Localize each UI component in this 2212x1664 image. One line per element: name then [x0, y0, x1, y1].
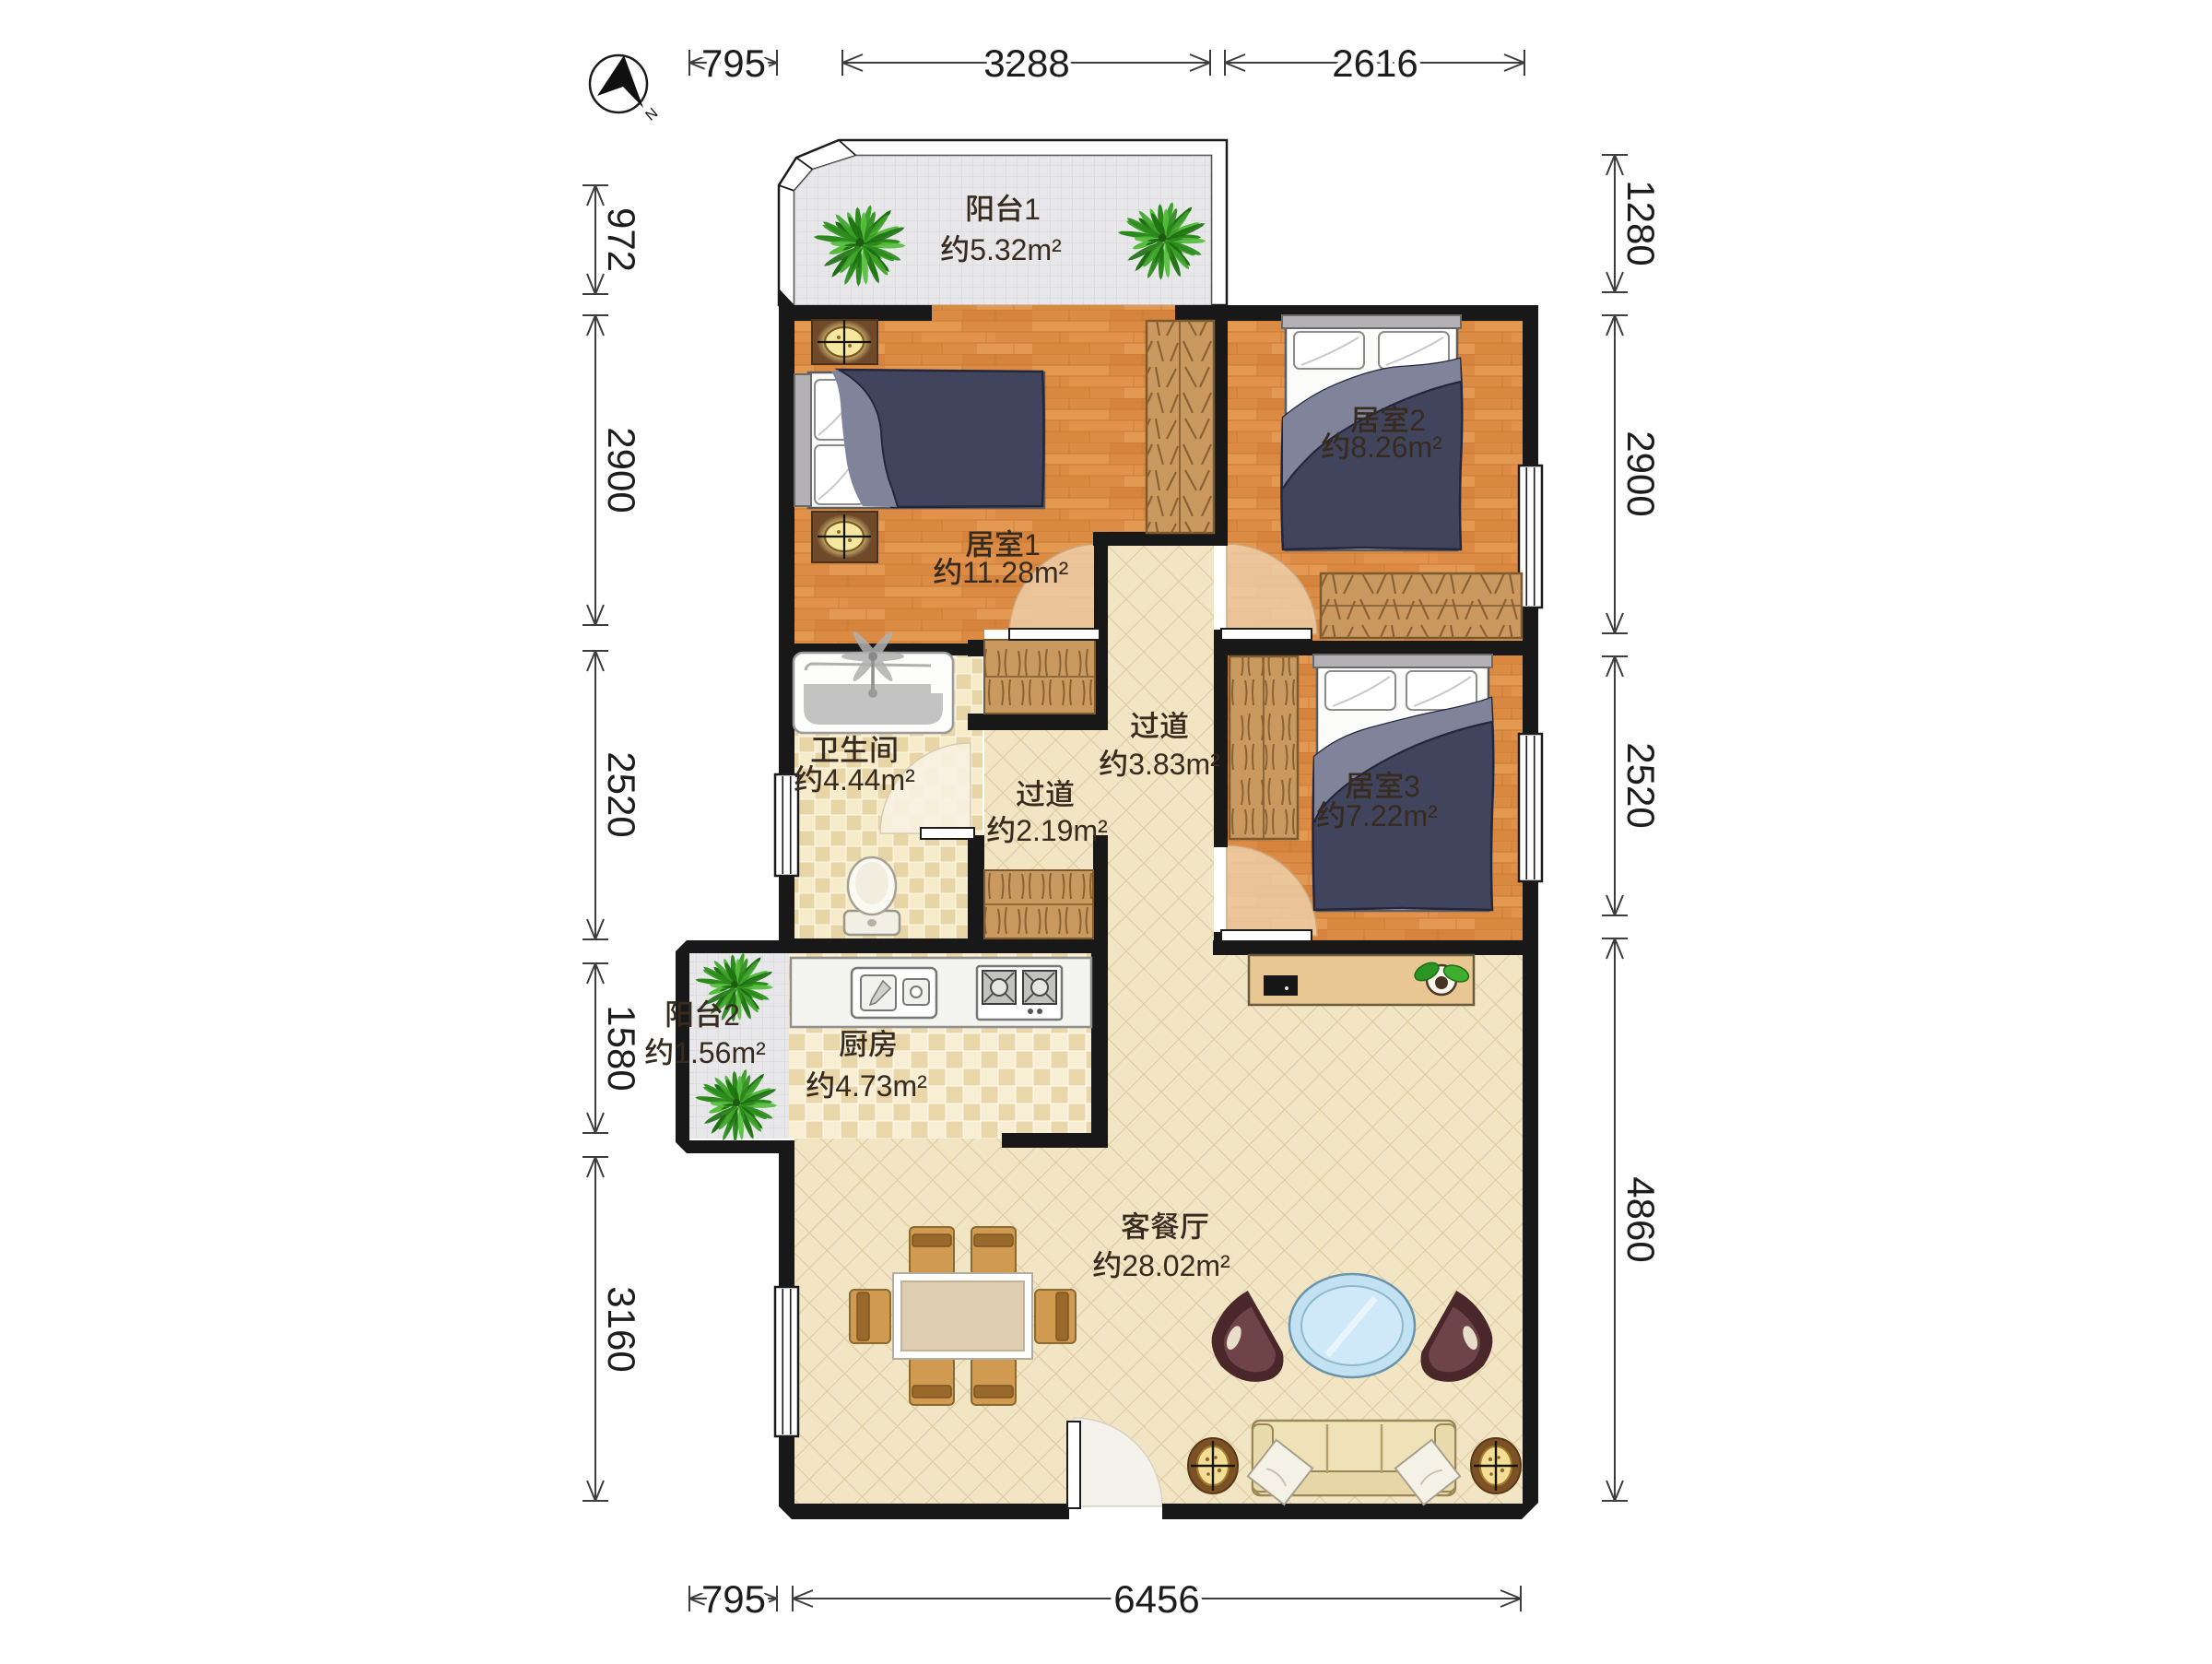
svg-text:3160: 3160 — [600, 1286, 643, 1372]
svg-text:795: 795 — [701, 1577, 766, 1621]
svg-text:3288: 3288 — [983, 41, 1069, 85]
svg-text:972: 972 — [600, 207, 643, 272]
svg-text:2900: 2900 — [600, 427, 643, 513]
svg-text:2900: 2900 — [1619, 431, 1663, 516]
svg-text:2616: 2616 — [1332, 41, 1418, 85]
svg-text:1.56m²: 1.56m² — [674, 1036, 766, 1069]
svg-text:4.44m²: 4.44m² — [823, 763, 915, 797]
svg-text:4860: 4860 — [1619, 1176, 1663, 1262]
svg-text:3: 3 — [1404, 770, 1420, 803]
svg-text:1580: 1580 — [600, 1005, 643, 1091]
svg-text:2520: 2520 — [600, 751, 643, 837]
svg-text:2520: 2520 — [1619, 742, 1663, 828]
svg-text:2.19m²: 2.19m² — [1016, 814, 1108, 847]
svg-text:1280: 1280 — [1619, 180, 1663, 266]
svg-text:795: 795 — [701, 41, 766, 85]
svg-text:4.73m²: 4.73m² — [835, 1069, 927, 1103]
svg-text:2: 2 — [724, 998, 740, 1032]
svg-text:3.83m²: 3.83m² — [1128, 748, 1220, 781]
svg-text:8.26m²: 8.26m² — [1350, 431, 1442, 464]
svg-text:1: 1 — [1024, 193, 1041, 226]
svg-text:6456: 6456 — [1113, 1577, 1199, 1621]
svg-text:7.22m²: 7.22m² — [1346, 799, 1438, 832]
svg-text:5.32m²: 5.32m² — [970, 233, 1062, 266]
svg-text:28.02m²: 28.02m² — [1122, 1249, 1230, 1282]
svg-text:11.28m²: 11.28m² — [962, 556, 1068, 589]
